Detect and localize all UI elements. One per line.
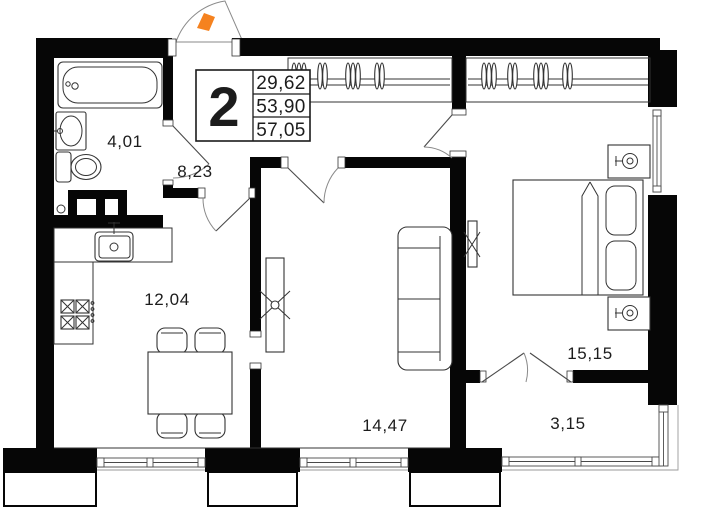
- pier-base: [208, 472, 297, 506]
- double-bed: [513, 180, 643, 295]
- tv-living-room: [260, 258, 290, 352]
- washbasin: [54, 112, 86, 150]
- wall-bedroom-bottom-left: [466, 370, 480, 383]
- wall-bathroom-right-upper: [163, 56, 173, 126]
- entrance-door-swing: [176, 1, 243, 42]
- wall-kitchen-living-upper: [250, 157, 261, 337]
- floor-plan-page: 2 29,62 53,90 57,05 4,01 8,23 12,04 14,4…: [0, 0, 712, 510]
- kitchen-door: [203, 198, 250, 231]
- wall-left: [36, 38, 54, 448]
- wall-kitchen-living-lower: [250, 363, 261, 448]
- living-room-window: [300, 458, 408, 467]
- tv-bedroom: [464, 221, 480, 267]
- balcony-area-label: 3,15: [550, 414, 586, 433]
- bedroom-area-label: 15,15: [567, 344, 613, 363]
- wall-corridor-bedroom: [452, 56, 466, 115]
- balcony-french-door: [482, 353, 571, 382]
- kitchen-area-label: 12,04: [144, 290, 190, 309]
- area-value-total: 57,05: [256, 120, 306, 141]
- area-value-living: 29,62: [256, 73, 306, 94]
- wall-right-main: [648, 195, 677, 405]
- bedroom-window: [653, 110, 661, 192]
- dining-table-with-chairs: [148, 328, 232, 438]
- bathtub: [58, 62, 162, 108]
- wall-top-main: [232, 38, 660, 56]
- floor-plan: 2 29,62 53,90 57,05 4,01 8,23 12,04 14,4…: [0, 0, 712, 510]
- living-room-area-label: 14,47: [362, 416, 408, 435]
- living-room-door: [288, 168, 338, 203]
- facade-pier-right: [408, 448, 502, 472]
- entry-direction-marker: [197, 13, 215, 31]
- wall-top-bathroom: [36, 38, 172, 58]
- toilet: [56, 152, 101, 182]
- pier-base: [410, 472, 500, 506]
- wall-hall-living-right: [338, 157, 452, 168]
- apartment-info-box: 2 29,62 53,90 57,05: [196, 70, 310, 141]
- wall-bedroom-bottom-right: [573, 370, 650, 383]
- hallway-area-label: 8,23: [177, 162, 213, 181]
- wall-right-top: [648, 50, 677, 107]
- facade-pier-left: [3, 448, 97, 472]
- pier-base: [4, 472, 96, 506]
- facade-pier-bases: [4, 472, 500, 506]
- stove: [61, 300, 94, 329]
- nightstand-lamp-top: [608, 145, 650, 178]
- wardrobe-corridor: [288, 58, 452, 102]
- kitchen-window: [97, 458, 205, 467]
- bedroom-door: [424, 115, 452, 158]
- room-count: 2: [208, 75, 239, 138]
- wardrobe-bedroom: [466, 58, 650, 102]
- nightstand-lamp-bottom: [608, 297, 650, 330]
- area-value-apartment: 53,90: [256, 97, 306, 118]
- bathroom-area-label: 4,01: [107, 132, 143, 151]
- facade-pier-middle: [205, 448, 300, 472]
- sofa: [398, 227, 452, 370]
